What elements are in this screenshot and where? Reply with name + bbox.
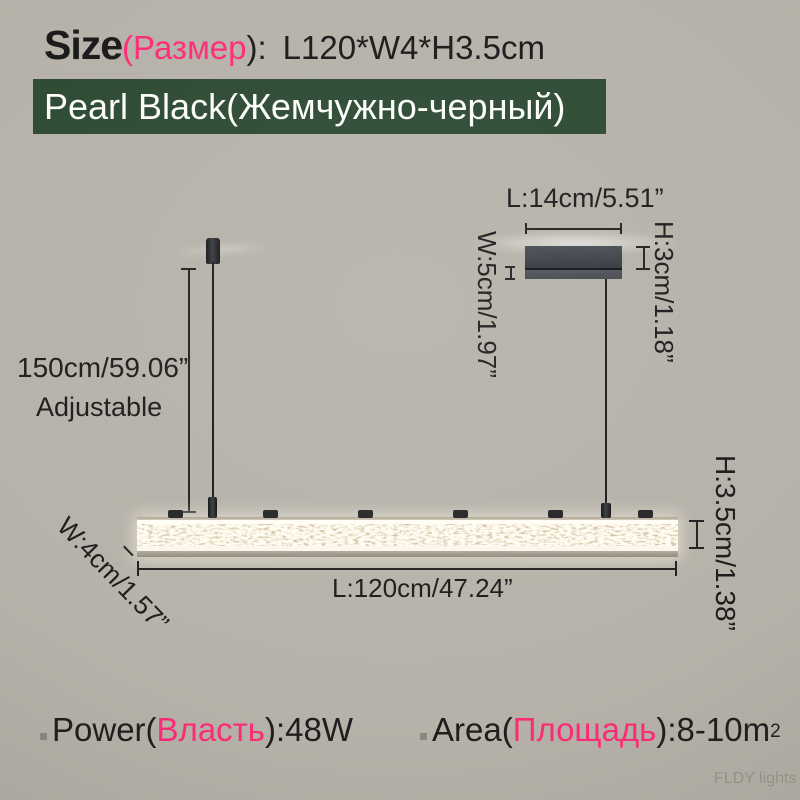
lamp-bar-bottom-rim [137, 551, 678, 557]
wire-anchor [206, 238, 220, 264]
bar-height-label: H:3.5cm/1.38” [709, 455, 741, 631]
canopy-length-label: L:14cm/5.51” [506, 183, 664, 214]
drop-dim-tick-top [181, 268, 196, 270]
bar-clip [263, 510, 278, 518]
suspension-wire-left [212, 262, 214, 518]
power-value: 48W [285, 711, 353, 749]
bar-length-dim-tick-left [137, 561, 139, 576]
power-bullet [40, 733, 47, 740]
area-label: Area [432, 711, 502, 749]
area-spec: Area(Площадь): 8-10m2 [432, 711, 781, 749]
bar-length-label: L:120cm/47.24” [332, 573, 513, 604]
anchor-glare [170, 239, 276, 259]
canopy-length-dim-tick-right [620, 223, 622, 234]
power-label: Power [52, 711, 146, 749]
drop-length-label: 150cm/59.06” [17, 352, 188, 384]
canopy-length-dim-tick-left [525, 223, 527, 234]
brand-watermark: FLDY lights [714, 770, 796, 788]
bar-height-dim-tick-bottom [689, 547, 704, 549]
wire-connector-left [208, 497, 217, 518]
canopy-height-dim-line [643, 247, 645, 269]
lamp-bar-crystal-texture [137, 524, 678, 546]
drop-dim-tick-bottom [181, 511, 196, 513]
bar-height-dim-tick-top [689, 520, 704, 522]
lamp-bar [137, 517, 678, 557]
canopy-top-face [525, 246, 622, 268]
bar-clip [453, 510, 468, 518]
area-label-russian: Площадь [513, 711, 657, 749]
power-spec: Power(Власть): 48W [52, 711, 353, 749]
bar-length-dim-line [137, 568, 676, 570]
bar-height-dim-line [696, 521, 698, 548]
bar-clip [638, 510, 653, 518]
area-value: 8-10m [677, 711, 771, 749]
canopy-height-label: H:3cm/1.18” [648, 221, 679, 363]
bar-clip [548, 510, 563, 518]
bar-length-dim-tick-right [675, 561, 677, 576]
canopy-length-dim-line [526, 228, 621, 230]
area-unit-superscript: 2 [770, 721, 781, 743]
color-name-banner: Pearl Black(Жемчужно-черный) [33, 79, 606, 134]
canopy-width-label: W:5cm/1.97” [471, 231, 502, 378]
power-label-russian: Власть [157, 711, 265, 749]
size-label: Size [44, 22, 122, 69]
canopy-bottom-face [525, 270, 622, 279]
drop-dim-line [188, 269, 190, 512]
area-bullet [420, 733, 427, 740]
size-label-russian: (Размер [122, 29, 246, 67]
power-paren-close: ): [265, 711, 285, 749]
bar-width-dim-tick [123, 546, 133, 556]
size-title: Size(Размер):L120*W4*H3.5cm [44, 22, 545, 69]
canopy-width-dim-tick-bottom [505, 278, 515, 280]
drop-adjustable-label: Adjustable [36, 392, 162, 423]
canopy-width-dim-tick-top [505, 266, 515, 268]
size-label-colon: ): [246, 29, 266, 67]
ceiling-canopy [525, 246, 622, 279]
area-paren-close: ): [656, 711, 676, 749]
wire-connector-right [601, 503, 611, 518]
area-paren-open: ( [502, 711, 513, 749]
suspension-wire-right [605, 278, 607, 518]
bar-clip [358, 510, 373, 518]
bar-clip [168, 510, 183, 518]
size-value: L120*W4*H3.5cm [283, 29, 545, 67]
power-paren-open: ( [146, 711, 157, 749]
product-dimension-infographic: Size(Размер):L120*W4*H3.5cm Pearl Black(… [0, 0, 800, 800]
